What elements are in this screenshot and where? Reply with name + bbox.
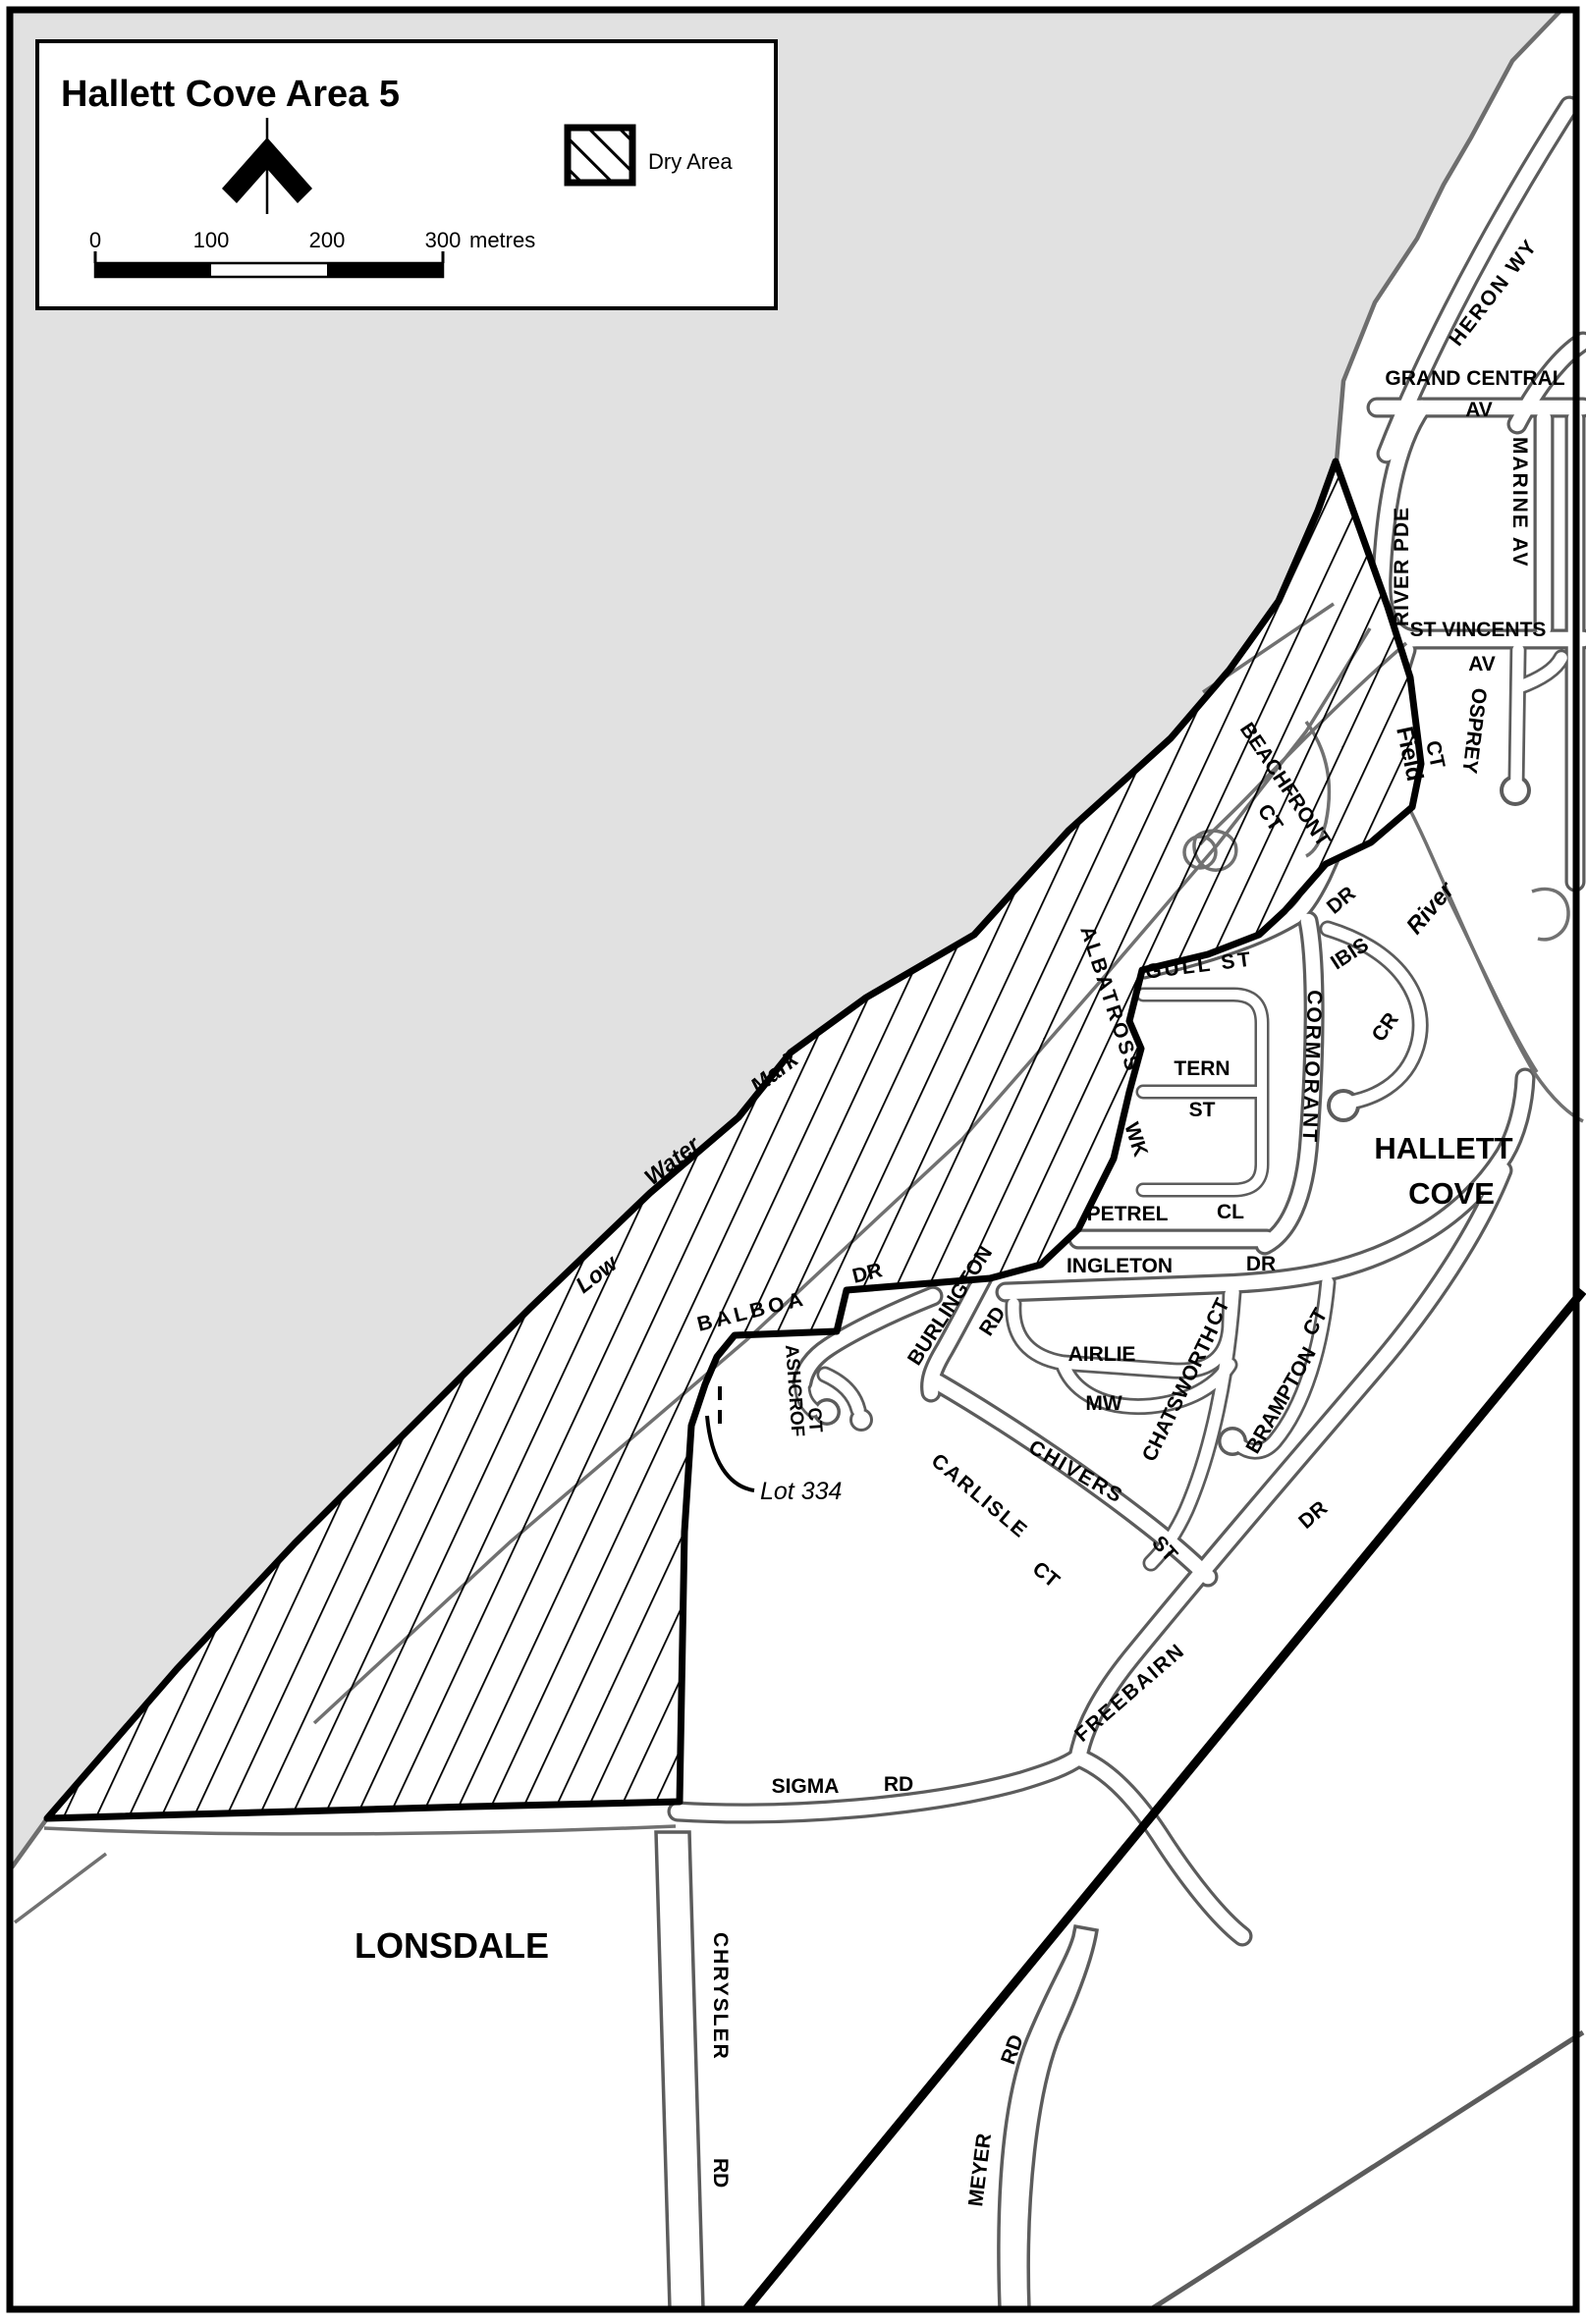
street-label-chrysler-rd: RD <box>709 2158 732 2188</box>
street-label-river-pde: RIVER PDE <box>1391 507 1413 626</box>
street-label-grand-central-av: AV <box>1465 399 1493 421</box>
street-label-ingleton-dr: DR <box>1246 1253 1276 1275</box>
street-label-st-vincents: ST VINCENTS <box>1410 619 1547 641</box>
street-label-sigma-rd: RD <box>884 1773 913 1796</box>
street-label-ingleton: INGLETON <box>1066 1255 1173 1277</box>
street-label-airlie-mw: MW <box>1085 1392 1121 1415</box>
locality-label-cove: COVE <box>1408 1176 1495 1211</box>
scale-tick-200: 200 <box>309 228 346 252</box>
scale-tick-0: 0 <box>89 228 101 252</box>
street-label-tern: TERN <box>1174 1057 1230 1080</box>
scale-tick-300: 300 <box>425 228 462 252</box>
street-label-airlie: AIRLIE <box>1068 1343 1136 1366</box>
street-label-chrysler: CHRYSLER <box>709 1932 732 2061</box>
street-label-st-vincents-av: AV <box>1468 653 1496 676</box>
annotation-lot334: Lot 334 <box>760 1478 842 1505</box>
title-box: Hallett Cove Area 5 Dry Area 0 100 200 3… <box>37 41 776 308</box>
street-label-tern-st: ST <box>1189 1099 1216 1121</box>
scale-tick-100: 100 <box>193 228 230 252</box>
dry-area-swatch-icon <box>568 128 632 183</box>
map-page: HERON WY GRAND CENTRAL AV MARINE AV RIVE… <box>0 0 1586 2319</box>
legend-dry-area-label: Dry Area <box>648 149 733 174</box>
locality-label-lonsdale: LONSDALE <box>355 1925 549 1966</box>
street-label-ashcrof-ct: CT <box>803 1407 826 1433</box>
street-label-grand-central: GRAND CENTRAL <box>1385 367 1564 390</box>
map-title: Hallett Cove Area 5 <box>61 74 400 115</box>
street-label-sigma: SIGMA <box>772 1775 840 1798</box>
street-label-petrel-cl: CL <box>1217 1201 1244 1223</box>
locality-label-hallett: HALLETT <box>1374 1131 1512 1165</box>
street-label-marine-av: MARINE AV <box>1508 437 1531 568</box>
street-label-petrel: PETREL <box>1087 1203 1169 1225</box>
map-svg: HERON WY GRAND CENTRAL AV MARINE AV RIVE… <box>0 0 1586 2319</box>
scale-unit: metres <box>469 228 535 252</box>
